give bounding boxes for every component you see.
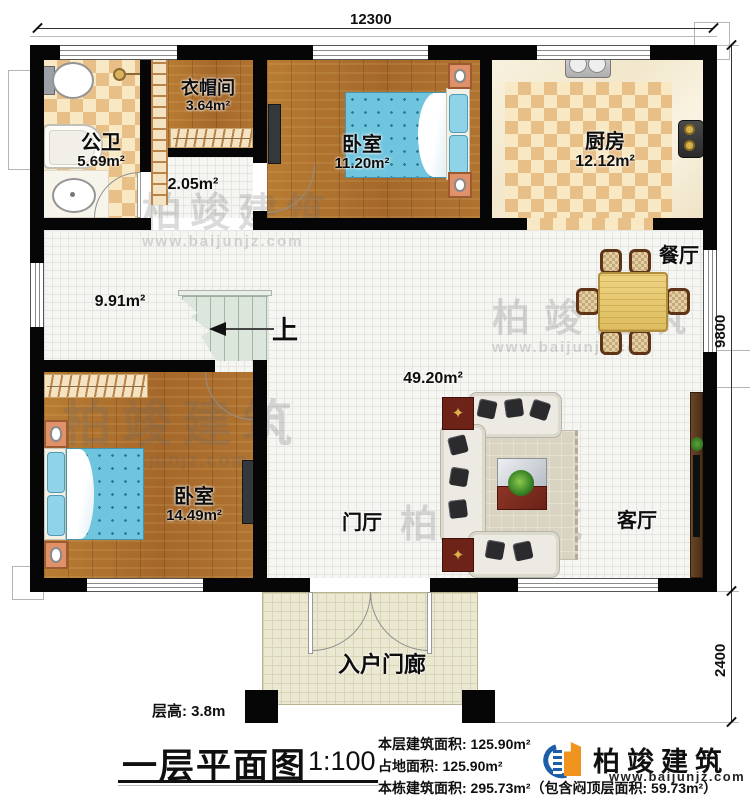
kitchen-area: 12.12m² (575, 153, 635, 171)
corridor-area: 9.91m² (95, 293, 146, 311)
stat-floor-area: 本层建筑面积: 125.90m² (378, 734, 530, 754)
wall-kitchen-bottom-right (653, 218, 703, 230)
cloakroom-hanger-rack (170, 128, 253, 148)
sofa-bottom-pillow-2 (512, 540, 533, 561)
dimension-right-lower-value: 2400 (712, 615, 729, 677)
wall-corridor-bottom-stub (253, 360, 267, 372)
cloakroom-area: 3.64m² (181, 98, 235, 114)
window-kitchen-top (537, 45, 650, 60)
label-dining: 餐厅 (659, 245, 699, 267)
label-bedroom-bottom: 卧室 14.49m² (166, 486, 222, 525)
wall-top-3 (428, 45, 537, 60)
label-cloakroom: 衣帽间 3.64m² (181, 78, 235, 114)
dining-chair-top-1 (600, 249, 622, 274)
wall-bedroom-top-left (253, 60, 267, 163)
dining-chair-bottom-2 (629, 330, 651, 355)
title-underline-thin (118, 785, 378, 786)
plan-scale: 1:100 (308, 746, 376, 777)
dining-chair-top-2 (629, 249, 651, 274)
bed-top-pillow-2 (449, 135, 468, 174)
stove-burner-1 (684, 124, 695, 135)
side-table-top: ✦ (442, 397, 474, 430)
label-foyer: 门厅 (342, 512, 382, 534)
wall-right-2 (703, 352, 717, 592)
dimension-line-top (37, 28, 713, 29)
cabinet-plant (691, 437, 703, 451)
logo-building-blue-icon (553, 750, 562, 776)
closet-ladder-rack (151, 60, 168, 205)
label-hallway: 2.05m² (168, 176, 219, 194)
dimension-top-value: 12300 (350, 11, 392, 28)
stair-up-text: 上 (272, 316, 298, 345)
bathroom-name: 公卫 (77, 132, 125, 154)
extension-right-3 (495, 722, 739, 723)
stove-burner-2 (684, 140, 695, 151)
sofa-top-pillow-1 (476, 398, 497, 419)
porch-floor (262, 592, 478, 705)
living-tv (693, 455, 700, 537)
entry-door-leaf-right (427, 592, 432, 654)
window-bedroom-top (313, 45, 428, 60)
sofa-top-pillow-2 (504, 398, 524, 418)
floor-height-note: 层高: 3.8m (152, 700, 225, 721)
brand-logo: 柏竣建筑 www.baijunjz.com (543, 740, 748, 784)
watermark-url: www.baijunjz.com (142, 234, 334, 250)
stat-footprint-area: 占地面积: 125.90m² (378, 756, 502, 776)
bedroom-top-name: 卧室 (334, 134, 389, 156)
window-bedroom-bottom (87, 578, 203, 592)
wall-cloakroom-bottom (168, 148, 253, 157)
label-bedroom-top: 卧室 11.20m² (334, 134, 389, 173)
bathroom-door-leaf (137, 172, 141, 218)
wall-bottom-2 (203, 578, 310, 592)
bedroom-top-tv (268, 104, 281, 164)
bedroom-bottom-closet-rack (44, 374, 148, 398)
sofa-left-pillow-2 (449, 467, 470, 488)
cloakroom-name: 衣帽间 (181, 78, 235, 98)
kitchen-door-threshold (527, 218, 653, 230)
wall-bathroom-bottom (30, 218, 151, 230)
side-table-bottom: ✦ (442, 538, 474, 572)
wall-bottom-4 (658, 578, 717, 592)
open-area-value: 49.20m² (403, 370, 463, 388)
wall-kitchen-left (480, 60, 492, 230)
label-corridor: 9.91m² (95, 293, 146, 311)
bedroom-bottom-area: 14.49m² (166, 508, 222, 525)
wall-bottom-3 (430, 578, 518, 592)
nightstand-bottom-2 (44, 541, 68, 569)
window-corridor-left (30, 263, 44, 327)
wall-bedroom-bottom-right (253, 372, 267, 578)
sofa-bottom-pillow-1 (485, 540, 506, 561)
label-bathroom: 公卫 5.69m² (77, 132, 125, 171)
sofa-left-pillow-3 (448, 499, 468, 519)
kitchen-name: 厨房 (575, 131, 635, 153)
porch-pillar-left (245, 690, 278, 723)
plant-on-table (508, 470, 534, 496)
label-porch: 入户门廊 (338, 653, 426, 678)
dimension-line-right (731, 45, 732, 723)
platform-right (716, 350, 750, 388)
bed-bottom-sheet-fold (67, 449, 94, 539)
porch-pillar-right (462, 690, 495, 723)
stair-direction-line (224, 328, 274, 330)
stair-arrow (209, 322, 226, 336)
floor-drain (113, 68, 126, 81)
label-living: 客厅 (617, 510, 657, 532)
dining-chair-left (576, 288, 600, 315)
bed-bottom-pillow-1 (47, 452, 65, 493)
entry-door-leaf-left (308, 592, 313, 654)
wall-kitchen-bottom-left (492, 218, 527, 230)
wall-bottom-1 (30, 578, 87, 592)
porch-name: 入户门廊 (338, 653, 426, 678)
hallway-area: 2.05m² (168, 176, 219, 194)
window-bathroom-top (60, 45, 177, 60)
wall-row1-bottom (253, 218, 492, 230)
dining-name: 餐厅 (659, 245, 699, 267)
sink-drain-dot (70, 192, 75, 197)
bedroom-top-area: 11.20m² (334, 156, 389, 173)
title-underline-thick (118, 780, 378, 783)
wall-right-1 (703, 45, 717, 250)
dining-chair-right (666, 288, 690, 315)
wall-corridor-bottom (30, 360, 215, 372)
nightstand-bottom-1 (44, 420, 68, 448)
bedroom-bottom-name: 卧室 (166, 486, 222, 508)
bathroom-area: 5.69m² (77, 154, 125, 171)
dining-chair-bottom-1 (600, 330, 622, 355)
bed-bottom-pillow-2 (47, 495, 65, 536)
bed-top-pillow-1 (449, 94, 468, 133)
brand-url: www.baijunjz.com (609, 769, 745, 784)
label-kitchen: 厨房 12.12m² (575, 131, 635, 171)
dimension-right-upper-value: 9800 (712, 286, 729, 348)
wall-bathroom-right (140, 60, 151, 172)
dining-table (598, 272, 668, 332)
floor-plan-canvas: 柏竣建筑 www.baijunjz.com 柏竣建筑 www.baijunjz.… (0, 0, 750, 804)
toilet-bowl (52, 62, 94, 99)
wall-top-2 (177, 45, 313, 60)
label-stair-up: 上 (272, 316, 298, 345)
window-living-bottom (518, 578, 658, 592)
watermark-url: www.baijunjz.com (492, 340, 700, 356)
label-open-area: 49.20m² (403, 370, 463, 388)
living-name: 客厅 (617, 510, 657, 532)
wall-left-1 (30, 45, 44, 263)
bed-top-sheet-fold (418, 93, 447, 177)
foyer-name: 门厅 (342, 512, 382, 534)
extension-line-top (30, 36, 717, 37)
nightstand-top-2 (448, 172, 472, 198)
stair-handrail (178, 290, 272, 296)
nightstand-top-1 (448, 63, 472, 89)
